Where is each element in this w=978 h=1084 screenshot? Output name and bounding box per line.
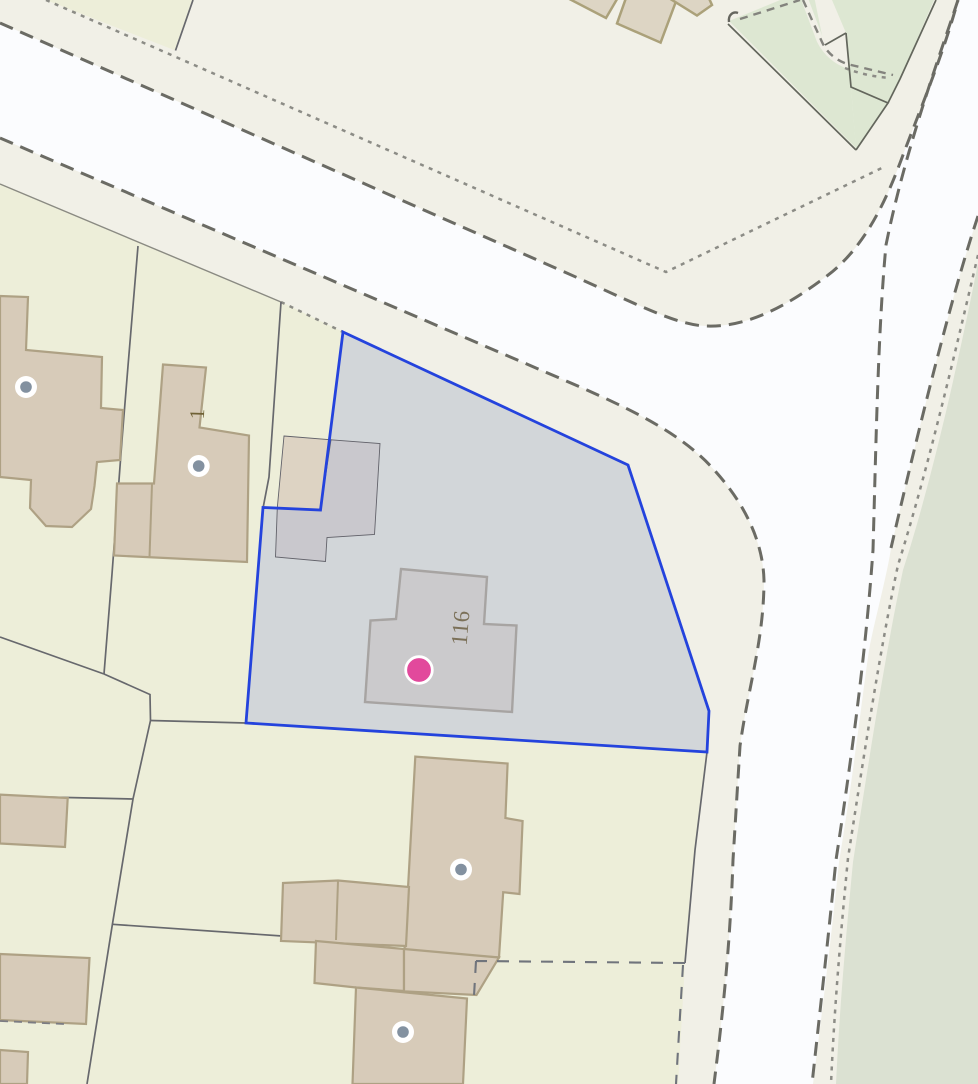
svg-text:116: 116	[447, 609, 475, 646]
svg-text:1: 1	[185, 408, 209, 419]
